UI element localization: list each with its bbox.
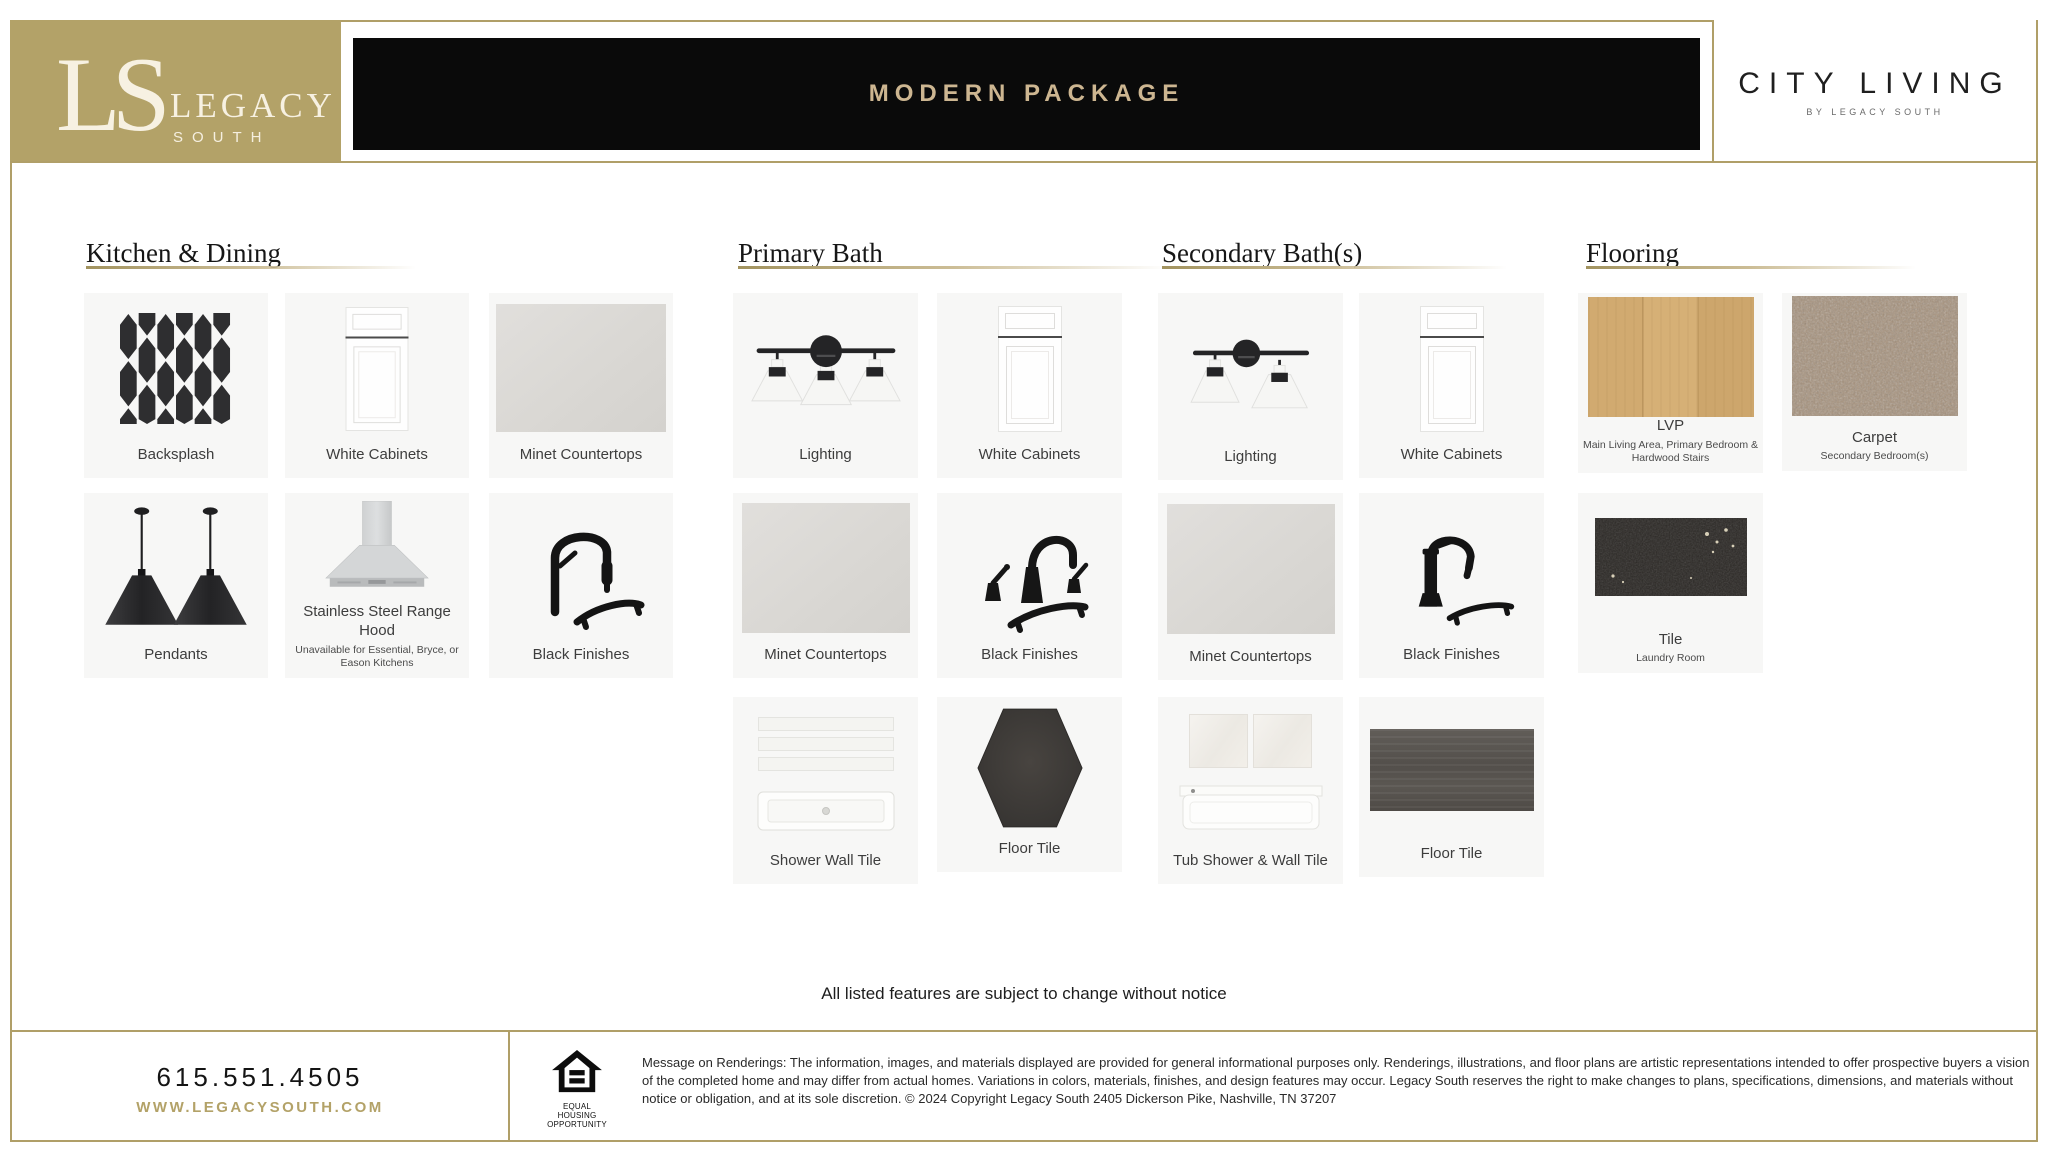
equal-housing-label: EQUAL HOUSING OPPORTUNITY (545, 1102, 609, 1130)
card-primary-floor-tile: Floor Tile (937, 697, 1122, 872)
item-label: Black Finishes (941, 646, 1118, 665)
brand-panel: LS LEGACY SOUTH (10, 20, 341, 163)
item-sublabel: Unavailable for Essential, Bryce, or Eas… (289, 644, 465, 671)
card-kitchen-white-cabinets: White Cabinets (285, 293, 469, 478)
header-bottom-rule (10, 161, 2038, 163)
card-secondary-minet-countertops: Minet Countertops (1158, 493, 1343, 680)
shower-wall-tile-image (733, 697, 918, 850)
legal-disclaimer: Message on Renderings: The information, … (642, 1054, 2032, 1109)
section-title-flooring: Flooring (1586, 238, 1679, 269)
item-label: Floor Tile (941, 840, 1118, 859)
card-secondary-black-finishes: Black Finishes (1359, 493, 1544, 678)
item-label: Backsplash (88, 446, 264, 465)
brochure-page: LS LEGACY SOUTH MODERN PACKAGE CITY LIVI… (0, 0, 2048, 1152)
laundry-tile-swatch (1578, 493, 1763, 621)
brand-name: LEGACY (170, 86, 336, 126)
card-kitchen-pendants: Pendants (84, 493, 268, 678)
lvp-swatch (1578, 293, 1763, 421)
minet-countertop-swatch (733, 493, 918, 642)
item-sublabel: Main Living Area, Primary Bedroom & Hard… (1582, 439, 1759, 466)
backsplash-image (84, 293, 268, 444)
black-finishes-image (937, 493, 1122, 644)
disclaimer-notice: All listed features are subject to chang… (0, 984, 2048, 1004)
item-label: Stainless Steel Range Hood (289, 603, 465, 641)
card-flooring-carpet: Carpet Secondary Bedroom(s) (1782, 293, 1967, 471)
card-primary-lighting: Lighting (733, 293, 918, 478)
brand-monogram: LS (56, 42, 162, 148)
section-title-kitchen: Kitchen & Dining (86, 238, 281, 269)
item-label: White Cabinets (289, 446, 465, 465)
item-label: Pendants (88, 646, 264, 665)
website-url: WWW.LEGACYSOUTH.COM (12, 1099, 508, 1116)
card-flooring-lvp: LVP Main Living Area, Primary Bedroom & … (1578, 293, 1763, 473)
item-label: Black Finishes (1363, 646, 1540, 665)
card-primary-white-cabinets: White Cabinets (937, 293, 1122, 478)
minet-countertop-swatch (1158, 493, 1343, 644)
pendants-image (84, 493, 268, 644)
card-flooring-tile: Tile Laundry Room (1578, 493, 1763, 673)
card-kitchen-black-finishes: Black Finishes (489, 493, 673, 678)
item-label: Lighting (1162, 448, 1339, 467)
card-kitchen-range-hood: Stainless Steel Range Hood Unavailable f… (285, 493, 469, 678)
collection-subtitle: BY LEGACY SOUTH (1806, 107, 1943, 117)
item-label: Black Finishes (493, 646, 669, 665)
section-underline-flooring (1586, 266, 1916, 269)
collection-name: CITY LIVING (1738, 67, 2012, 101)
item-label: Tile (1582, 631, 1759, 650)
item-label: Tub Shower & Wall Tile (1162, 852, 1339, 871)
card-primary-shower-wall-tile: Shower Wall Tile (733, 697, 918, 884)
item-label: Minet Countertops (1162, 648, 1339, 667)
phone-number: 615.551.4505 (12, 1062, 508, 1093)
card-primary-minet-countertops: Minet Countertops (733, 493, 918, 678)
range-hood-image (285, 493, 469, 614)
card-primary-black-finishes: Black Finishes (937, 493, 1122, 678)
equal-housing-icon (548, 1049, 606, 1095)
card-secondary-floor-tile: Floor Tile (1359, 697, 1544, 877)
card-kitchen-backsplash: Backsplash (84, 293, 268, 478)
black-finishes-image (1359, 493, 1544, 644)
item-label: LVP (1582, 417, 1759, 436)
minet-countertop-swatch (489, 293, 673, 442)
carpet-swatch (1782, 293, 1967, 419)
card-secondary-lighting: Lighting (1158, 293, 1343, 480)
vanity-light-3-image (733, 293, 918, 444)
white-cabinet-image (1359, 293, 1544, 444)
collection-panel: CITY LIVING BY LEGACY SOUTH (1714, 20, 2036, 163)
tub-shower-image (1158, 697, 1343, 850)
package-title-banner: MODERN PACKAGE (353, 38, 1700, 150)
item-label: Carpet (1786, 429, 1963, 448)
card-kitchen-minet-countertops: Minet Countertops (489, 293, 673, 478)
hex-floor-tile-image (937, 697, 1122, 838)
item-sublabel: Laundry Room (1582, 652, 1759, 666)
black-finishes-image (489, 493, 673, 644)
white-cabinet-image (937, 293, 1122, 444)
brand-name-sub: SOUTH (173, 129, 271, 146)
item-label: Lighting (737, 446, 914, 465)
item-label: Shower Wall Tile (737, 852, 914, 871)
section-title-primary-bath: Primary Bath (738, 238, 883, 269)
vanity-light-2-image (1158, 293, 1343, 446)
footer-divider (508, 1032, 510, 1140)
section-title-secondary-bath: Secondary Bath(s) (1162, 238, 1362, 269)
item-label: White Cabinets (941, 446, 1118, 465)
item-label: Minet Countertops (493, 446, 669, 465)
section-underline-kitchen (86, 266, 416, 269)
item-label: Floor Tile (1363, 845, 1540, 864)
item-label: Minet Countertops (737, 646, 914, 665)
card-secondary-white-cabinets: White Cabinets (1359, 293, 1544, 478)
footer-top-rule (10, 1030, 2038, 1032)
item-sublabel: Secondary Bedroom(s) (1786, 450, 1963, 464)
item-label: White Cabinets (1363, 446, 1540, 465)
floor-tile-swatch (1359, 697, 1544, 843)
section-underline-primary-bath (738, 266, 1168, 269)
package-title: MODERN PACKAGE (869, 80, 1185, 108)
equal-housing-logo: EQUAL HOUSING OPPORTUNITY (545, 1049, 609, 1130)
card-secondary-tub-shower: Tub Shower & Wall Tile (1158, 697, 1343, 884)
white-cabinet-image (285, 293, 469, 444)
section-underline-secondary-bath (1162, 266, 1507, 269)
